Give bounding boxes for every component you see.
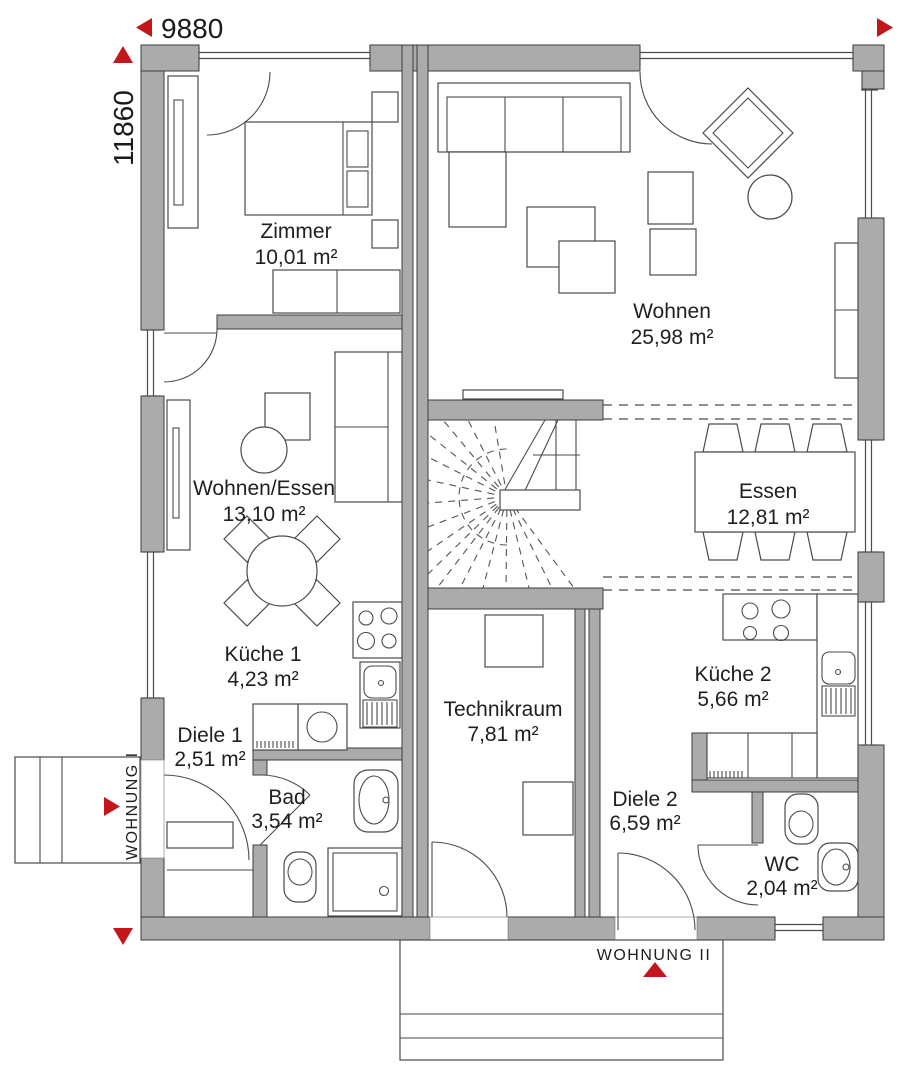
wall-segment <box>508 917 615 940</box>
stove <box>723 594 817 641</box>
equipment-box <box>523 782 573 835</box>
zimmer-furniture <box>168 76 400 313</box>
apartment-1-label: WOHNUNG I <box>124 751 141 860</box>
window-right-wohnen <box>861 90 878 218</box>
washing-machine <box>298 704 347 750</box>
room-label-kueche1-area: 4,23 m² <box>227 668 298 691</box>
round-side-table <box>748 175 792 219</box>
wall-segment <box>253 760 267 775</box>
window-right-essen <box>861 440 878 552</box>
toilet <box>785 794 818 844</box>
wall-segment <box>858 745 884 940</box>
bed <box>245 122 372 215</box>
wall-segment <box>217 315 402 329</box>
door-technikraum <box>432 842 507 917</box>
wall-segment <box>589 609 600 917</box>
sofa <box>335 352 402 502</box>
wall-segment <box>141 917 430 940</box>
sideboard <box>835 243 858 378</box>
dimension-arrow-right-icon <box>877 18 893 37</box>
wall-segment <box>853 45 884 71</box>
wall-segment <box>697 917 775 940</box>
nightstand <box>372 92 398 122</box>
wall-segment <box>823 917 884 940</box>
door-zimmer-wohnessen <box>164 329 217 382</box>
room-label-wc-area: 2,04 m² <box>746 877 817 900</box>
room-label-technikraum-name: Technikraum <box>443 698 562 721</box>
dimension-arrow-left-icon <box>136 18 152 37</box>
room-label-diele1-name: Diele 1 <box>177 724 242 747</box>
window-right-kueche2 <box>861 602 878 745</box>
room-label-wohnen-essen-area: 13,10 m² <box>223 503 306 526</box>
hall-cabinet <box>167 822 233 848</box>
nightstand <box>372 220 398 248</box>
room-label-kueche1-name: Küche 1 <box>224 643 301 666</box>
kitchen-counter-low <box>707 733 817 778</box>
washbasin <box>818 843 858 891</box>
toilet <box>284 852 316 902</box>
window-left-upper <box>143 330 160 396</box>
party-wall <box>417 45 428 917</box>
armchair-diamond <box>703 88 793 178</box>
sideboard <box>167 400 190 550</box>
shower <box>328 848 402 916</box>
dimension-width-label: 9880 <box>161 13 223 44</box>
floor-plan-page: 9880 11860 WOHNUNG I WOHNUNG II Zimmer 1… <box>0 0 903 1080</box>
apartment-2-label: WOHNUNG II <box>597 947 712 964</box>
wall-segment <box>141 698 164 760</box>
room-label-essen-name: Essen <box>739 480 797 503</box>
window-zimmer-top <box>199 47 370 66</box>
room-label-technikraum-area: 7,81 m² <box>467 723 538 746</box>
wall-segment <box>428 45 640 71</box>
stair-mat <box>463 390 563 399</box>
room-label-wohnen-area: 25,98 m² <box>631 326 714 349</box>
stair-landing <box>500 490 580 510</box>
room-label-kueche2-name: Küche 2 <box>694 663 771 686</box>
entrance-opening-wohnung-1 <box>141 760 164 858</box>
kueche2-furniture <box>707 594 858 778</box>
dimension-arrow-up-icon <box>113 46 133 63</box>
wall-segment <box>752 792 763 843</box>
wall-segment <box>141 396 164 552</box>
wardrobe <box>168 76 198 228</box>
kitchen-sink <box>360 662 400 728</box>
side-table <box>650 229 696 275</box>
armchair <box>241 427 287 473</box>
dimension-arrow-down-icon <box>113 928 133 945</box>
room-label-diele2-area: 6,59 m² <box>609 812 680 835</box>
boiler <box>485 615 543 667</box>
room-label-wohnen-essen-name: Wohnen/Essen <box>193 477 335 500</box>
room-label-zimmer-area: 10,01 m² <box>255 246 338 269</box>
side-table <box>648 172 693 224</box>
room-label-wc-name: WC <box>765 853 800 876</box>
technikraum-door-opening <box>430 917 508 940</box>
wall-segment <box>575 609 585 917</box>
round-table <box>247 536 317 606</box>
wall-segment <box>858 552 884 602</box>
floor-plan-svg: 9880 11860 WOHNUNG I WOHNUNG II Zimmer 1… <box>0 0 903 1080</box>
room-label-bad-area: 3,54 m² <box>251 810 322 833</box>
wall-segment <box>858 218 884 440</box>
wall-segment <box>862 71 884 89</box>
coffee-table <box>559 241 615 293</box>
party-wall <box>402 45 413 917</box>
wall-segment <box>428 588 603 609</box>
room-label-wohnen-name: Wohnen <box>633 300 711 323</box>
wall-segment <box>141 71 164 330</box>
bench <box>273 270 400 313</box>
kitchen-cabinet <box>253 704 298 750</box>
room-label-zimmer-name: Zimmer <box>260 220 331 243</box>
window-left-lower <box>143 552 160 698</box>
entrance-opening-wohnung-2 <box>615 917 697 940</box>
wall-segment <box>692 780 858 792</box>
corner-sofa <box>438 83 630 227</box>
room-label-diele1-area: 2,51 m² <box>174 748 245 771</box>
door-wohnen-terrace <box>640 72 712 144</box>
stair-flight <box>500 420 580 510</box>
window-wc-bottom <box>775 920 823 937</box>
room-label-bad-name: Bad <box>268 786 305 809</box>
wall-segment <box>428 400 603 420</box>
wall-segment <box>141 45 199 71</box>
room-label-kueche2-area: 5,66 m² <box>697 688 768 711</box>
dining-set <box>224 516 340 626</box>
wall-segment <box>253 845 267 917</box>
room-label-diele2-name: Diele 2 <box>612 788 677 811</box>
room-label-essen-area: 12,81 m² <box>727 506 810 529</box>
stove <box>353 602 402 658</box>
porch-wohnung-1 <box>15 757 140 863</box>
window-wohnen-top <box>640 47 853 66</box>
washbasin <box>354 770 398 832</box>
dimension-height-label: 11860 <box>108 90 139 166</box>
